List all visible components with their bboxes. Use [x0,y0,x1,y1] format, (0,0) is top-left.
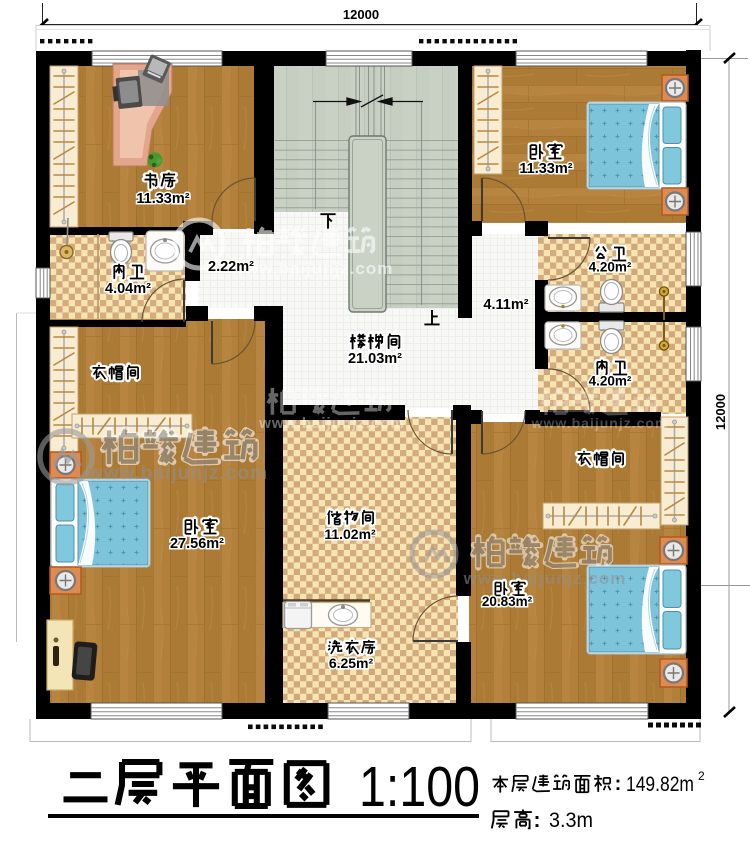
svg-text:2: 2 [698,769,705,783]
svg-text::: : [534,809,541,832]
svg-text:12000: 12000 [713,394,728,430]
svg-text:www.baijunjz.com: www.baijunjz.com [531,415,669,431]
svg-text:4.04m²: 4.04m² [105,281,151,297]
svg-text:www.baijunjz.com: www.baijunjz.com [230,259,394,278]
svg-text:www.baijunjz.com: www.baijunjz.com [463,569,627,588]
svg-text:www.baijunjz.com: www.baijunjz.com [258,415,404,432]
svg-text:11.02m²: 11.02m² [324,526,376,542]
svg-text:21.03m²: 21.03m² [348,351,402,367]
svg-text:1:100: 1:100 [359,755,480,819]
svg-text:2.22m²: 2.22m² [208,259,254,275]
svg-text:6.25m²: 6.25m² [329,655,374,671]
svg-text:12000: 12000 [343,7,379,22]
svg-text:4.20m²: 4.20m² [589,374,632,389]
svg-text:27.56m²: 27.56m² [170,536,224,552]
svg-text:20.83m²: 20.83m² [482,594,533,609]
svg-text:4.20m²: 4.20m² [589,260,632,275]
svg-text:11.33m²: 11.33m² [519,161,572,177]
svg-text:11.33m²: 11.33m² [136,191,189,207]
svg-text:4.11m²: 4.11m² [483,297,528,313]
svg-text:3.3m: 3.3m [549,809,593,832]
svg-text:149.82m: 149.82m [626,773,694,796]
svg-text:www.baijunjz.com: www.baijunjz.com [87,463,268,484]
svg-text::: : [615,773,622,795]
